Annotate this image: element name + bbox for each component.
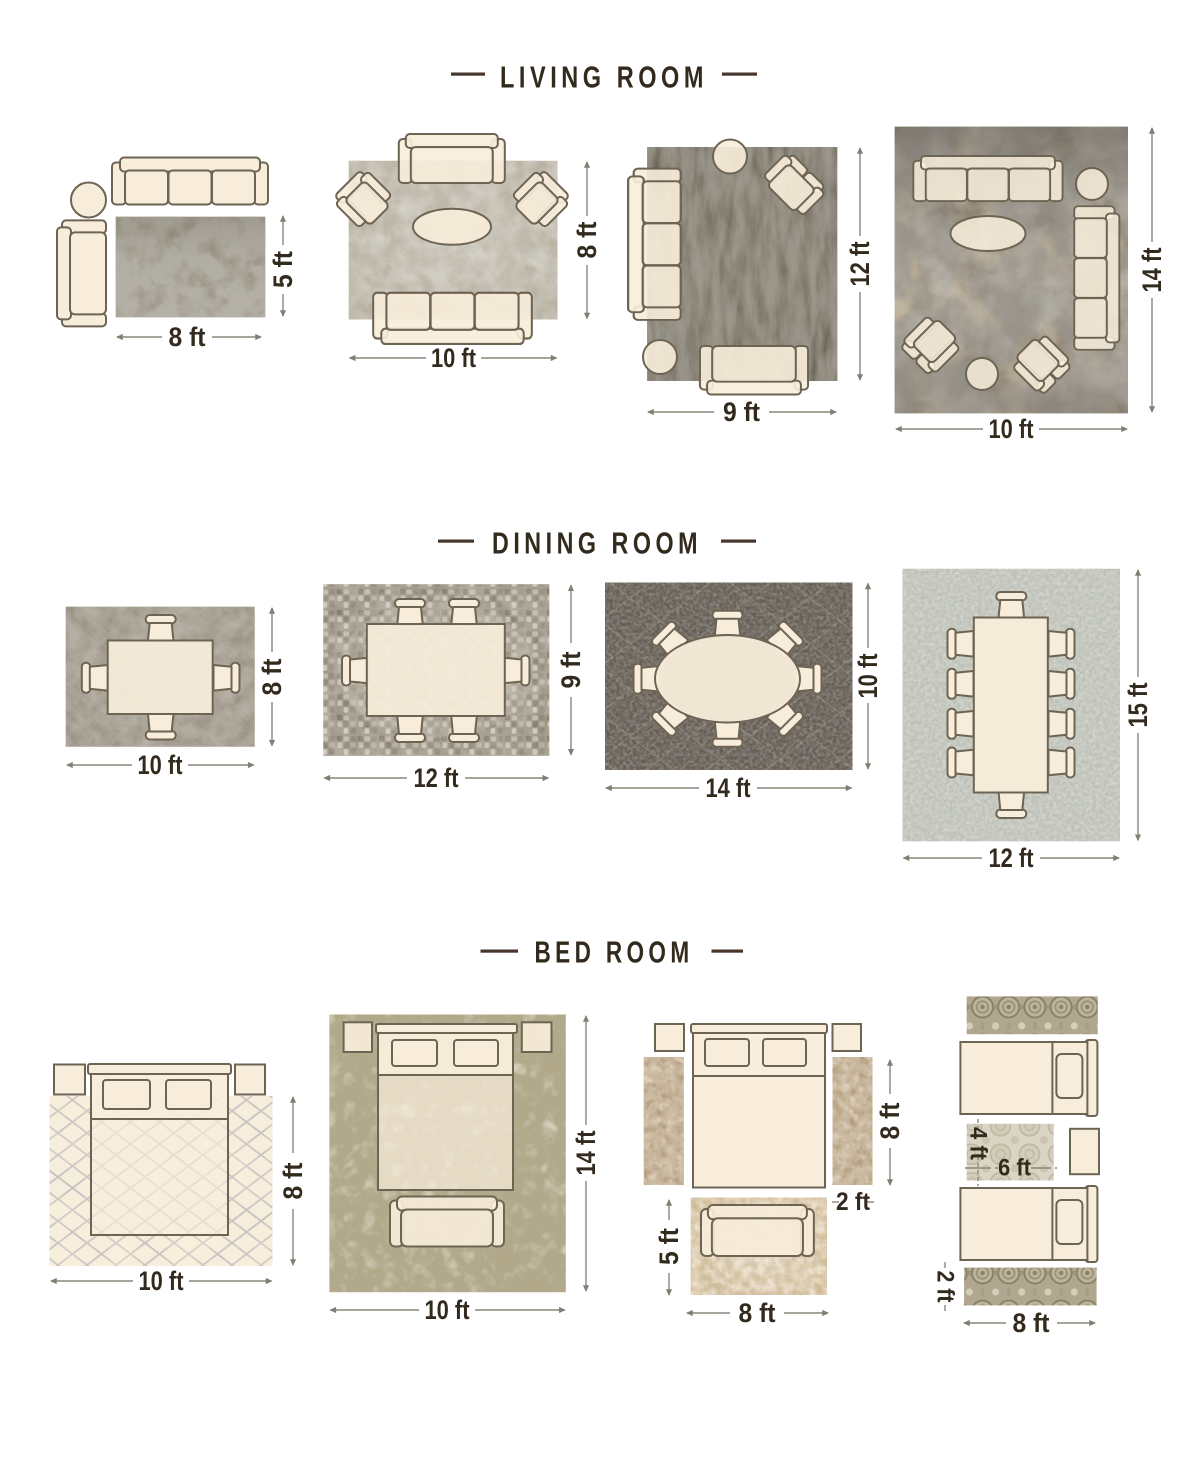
svg-text:10 ft: 10 ft xyxy=(989,414,1034,444)
svg-text:12 ft: 12 ft xyxy=(845,242,875,287)
svg-text:4 ft: 4 ft xyxy=(965,1127,992,1160)
svg-text:8 ft: 8 ft xyxy=(739,1298,776,1328)
svg-text:8 ft: 8 ft xyxy=(257,658,287,695)
svg-text:14 ft: 14 ft xyxy=(706,773,751,803)
svg-text:8 ft: 8 ft xyxy=(572,221,602,258)
svg-text:BED ROOM: BED ROOM xyxy=(535,935,694,970)
svg-text:6 ft: 6 ft xyxy=(998,1155,1031,1182)
svg-text:2 ft: 2 ft xyxy=(932,1271,959,1303)
svg-text:LIVING ROOM: LIVING ROOM xyxy=(500,60,708,95)
svg-text:10 ft: 10 ft xyxy=(425,1295,470,1325)
svg-text:8 ft: 8 ft xyxy=(278,1162,308,1199)
svg-text:12 ft: 12 ft xyxy=(414,763,459,793)
svg-text:10 ft: 10 ft xyxy=(138,750,183,780)
svg-text:12 ft: 12 ft xyxy=(989,843,1034,873)
svg-text:9 ft: 9 ft xyxy=(556,651,586,688)
svg-text:14 ft: 14 ft xyxy=(1137,248,1167,293)
svg-text:10 ft: 10 ft xyxy=(139,1266,184,1296)
svg-text:8 ft: 8 ft xyxy=(875,1102,905,1139)
svg-text:15 ft: 15 ft xyxy=(1123,683,1153,728)
svg-text:5 ft: 5 ft xyxy=(268,251,298,288)
svg-text:DINING ROOM: DINING ROOM xyxy=(492,526,702,561)
svg-text:5 ft: 5 ft xyxy=(654,1228,684,1265)
svg-text:8 ft: 8 ft xyxy=(169,322,206,352)
svg-text:14 ft: 14 ft xyxy=(571,1131,601,1176)
svg-text:8 ft: 8 ft xyxy=(1013,1308,1050,1338)
svg-text:10 ft: 10 ft xyxy=(431,343,476,373)
svg-text:10 ft: 10 ft xyxy=(853,654,883,699)
svg-text:9 ft: 9 ft xyxy=(723,397,760,427)
svg-text:2 ft: 2 ft xyxy=(836,1188,871,1216)
